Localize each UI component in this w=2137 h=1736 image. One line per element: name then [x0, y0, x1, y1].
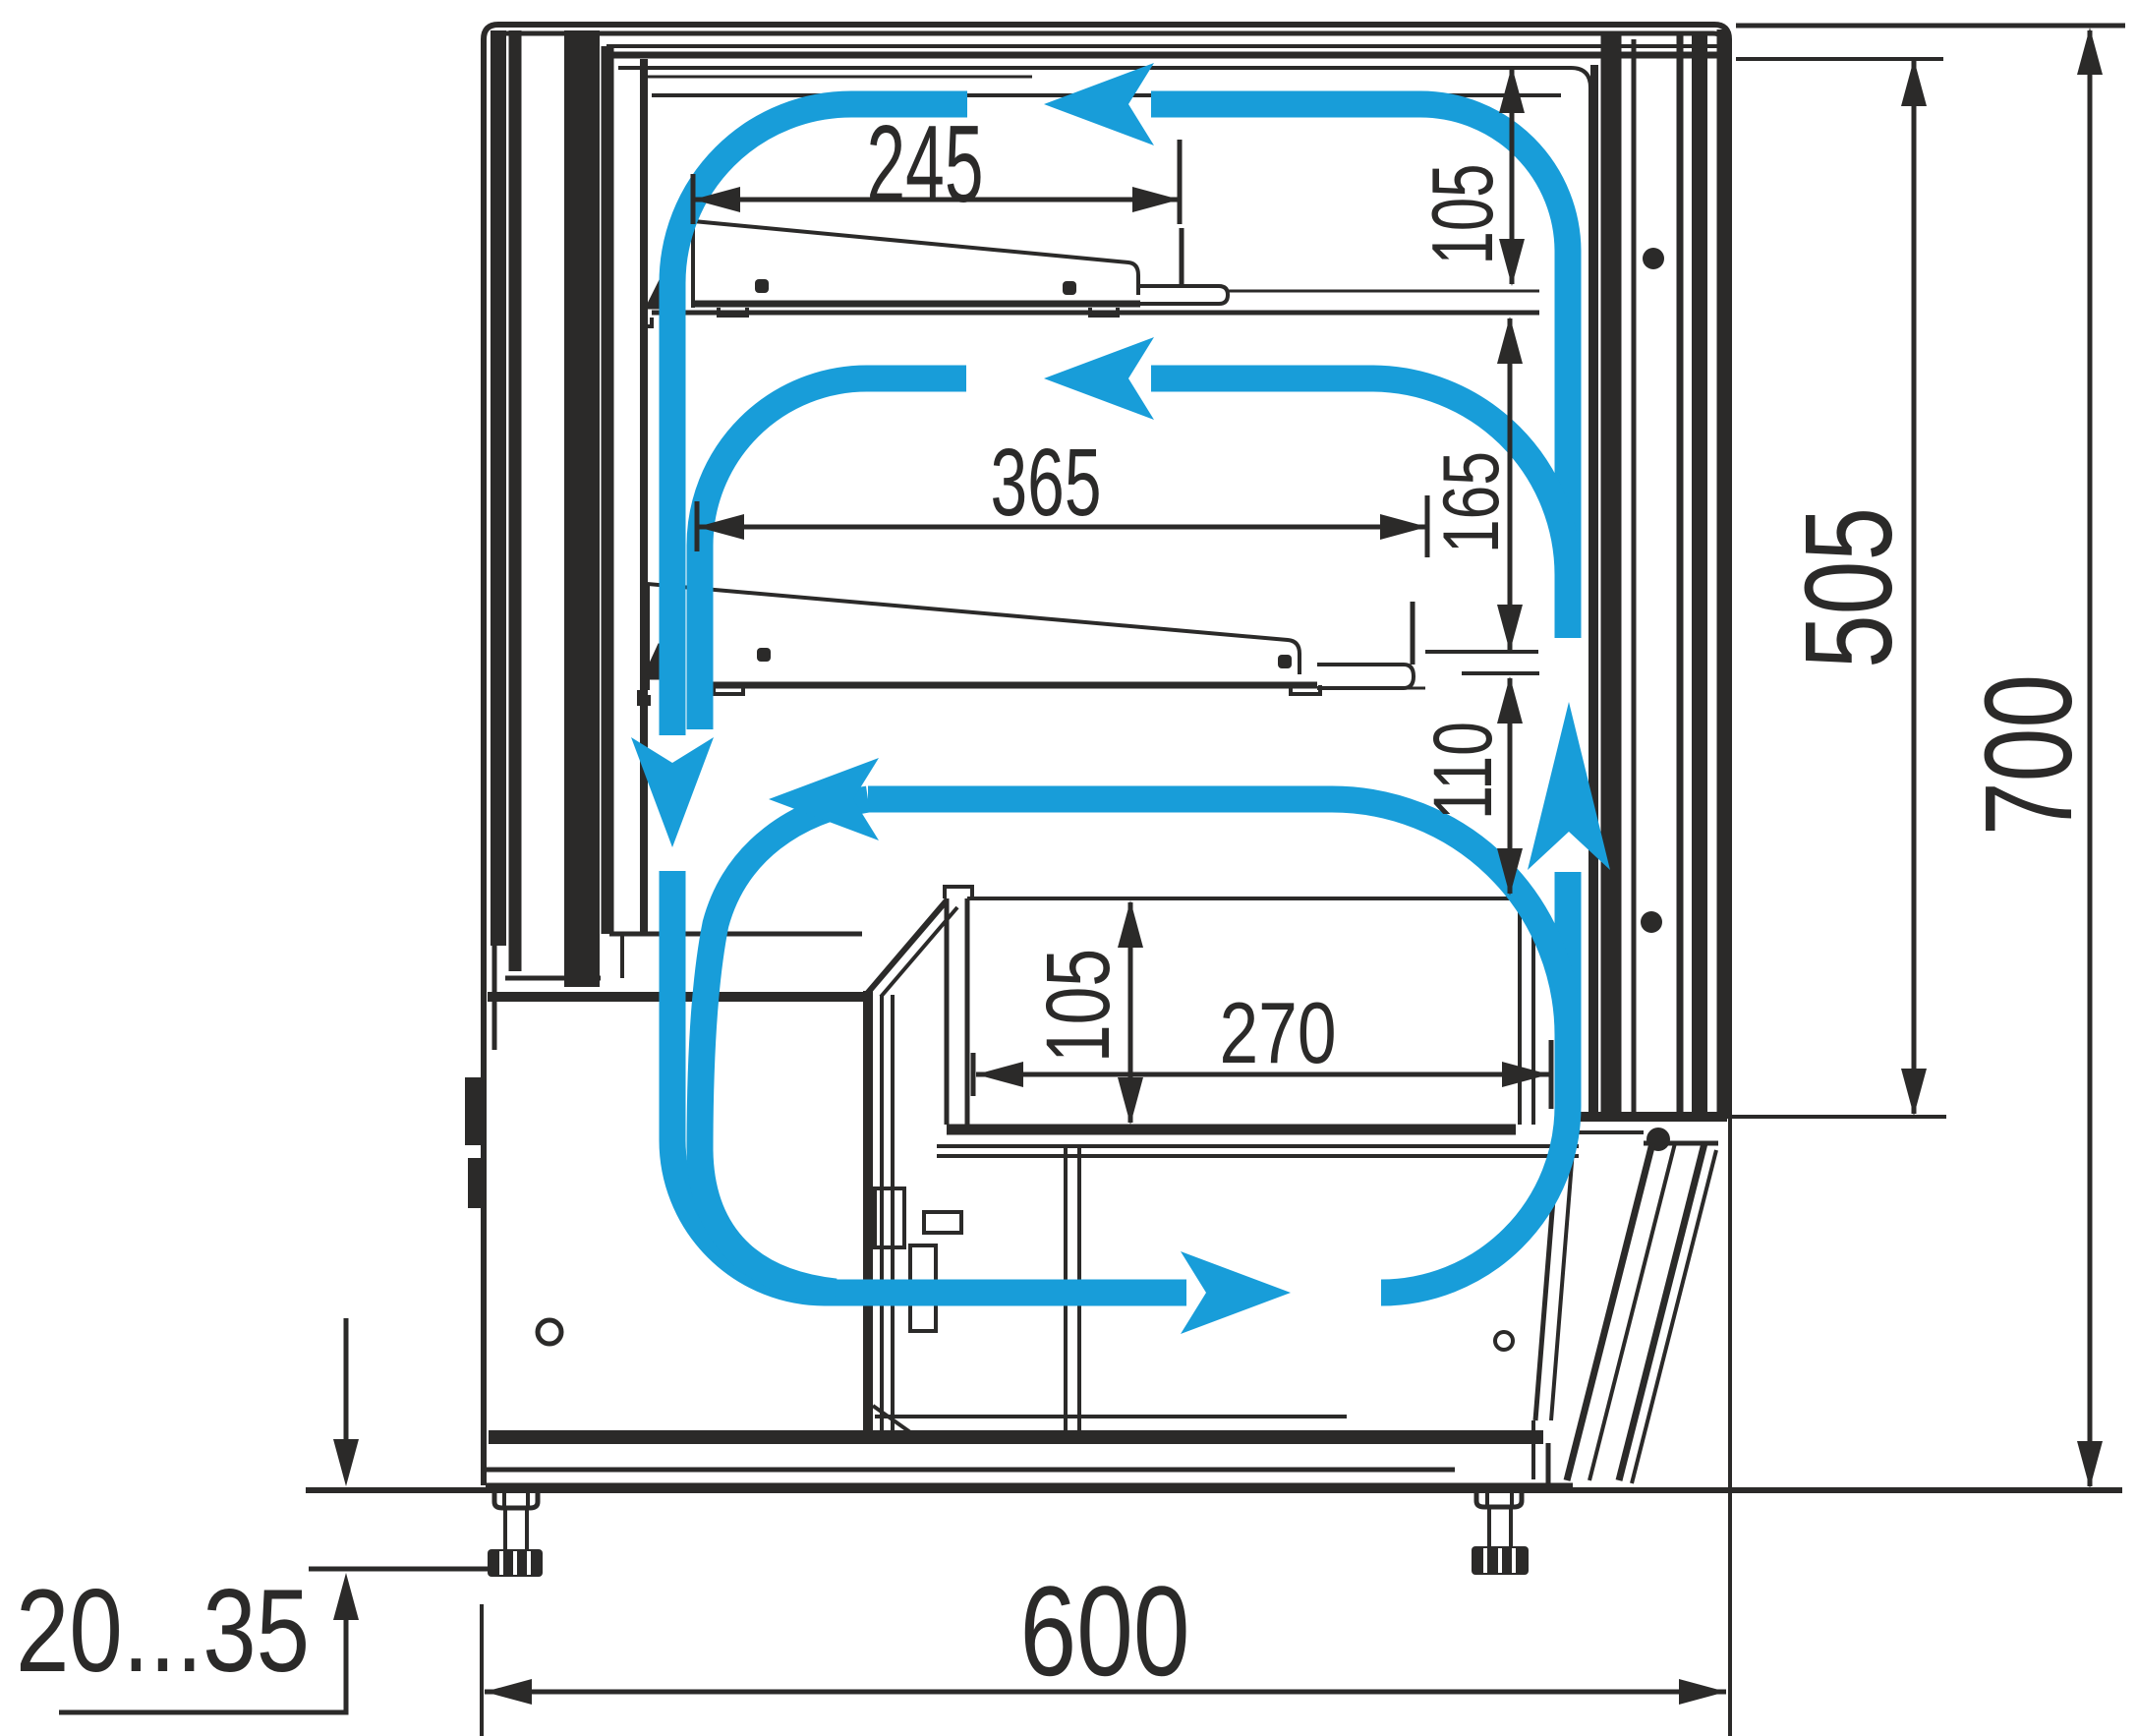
- svg-text:365: 365: [991, 429, 1102, 536]
- svg-text:165: 165: [1427, 451, 1516, 553]
- svg-text:20...35: 20...35: [16, 1565, 310, 1697]
- svg-text:505: 505: [1779, 507, 1918, 668]
- svg-text:105: 105: [1414, 164, 1511, 265]
- svg-text:110: 110: [1416, 722, 1509, 820]
- svg-text:270: 270: [1220, 984, 1337, 1081]
- svg-text:105: 105: [1028, 949, 1128, 1063]
- svg-text:700: 700: [1959, 674, 2098, 836]
- svg-text:245: 245: [867, 103, 984, 225]
- svg-text:600: 600: [1020, 1559, 1190, 1703]
